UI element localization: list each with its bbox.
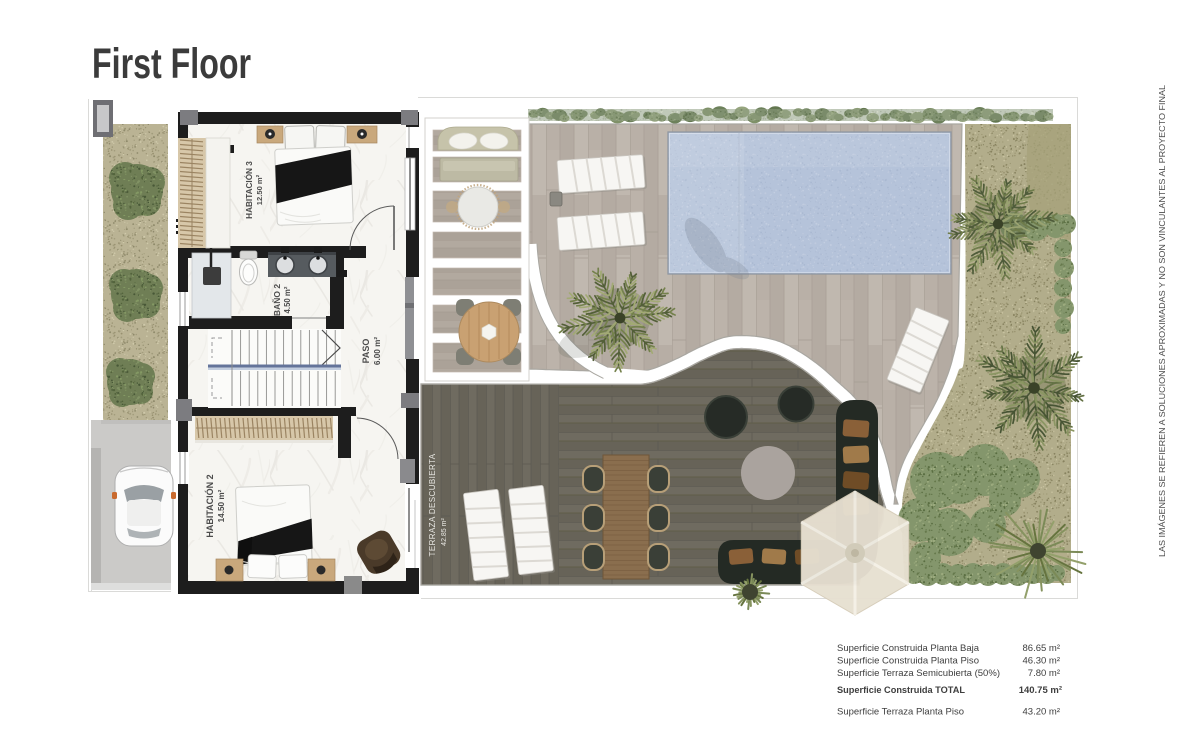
svg-text:42.85 m²: 42.85 m² bbox=[441, 518, 448, 546]
svg-text:12.50 m²: 12.50 m² bbox=[255, 174, 264, 205]
svg-text:HABITACIÓN 2: HABITACIÓN 2 bbox=[204, 474, 215, 537]
svg-text:6.00 m²: 6.00 m² bbox=[373, 337, 382, 365]
svg-text:4.50 m²: 4.50 m² bbox=[283, 286, 292, 313]
svg-text:BAÑO 2: BAÑO 2 bbox=[272, 284, 282, 316]
svg-text:140.75 m²: 140.75 m² bbox=[1019, 685, 1062, 696]
svg-text:Superficie Terraza Planta Piso: Superficie Terraza Planta Piso bbox=[837, 707, 964, 718]
svg-text:43.20 m²: 43.20 m² bbox=[1023, 707, 1061, 718]
svg-text:Superficie Construida Planta P: Superficie Construida Planta Piso bbox=[837, 656, 979, 667]
svg-text:86.65 m²: 86.65 m² bbox=[1023, 643, 1061, 654]
svg-text:First Floor: First Floor bbox=[92, 40, 251, 88]
svg-text:Superficie Terraza Semicubiert: Superficie Terraza Semicubierta (50%) bbox=[837, 668, 1000, 679]
svg-text:PASO: PASO bbox=[361, 339, 371, 364]
svg-text:LAS IMÁGENES SE REFIEREN A SOL: LAS IMÁGENES SE REFIEREN A SOLUCIONES AP… bbox=[1157, 85, 1167, 557]
svg-text:TERRAZA DESCUBIERTA: TERRAZA DESCUBIERTA bbox=[428, 453, 437, 556]
svg-text:Superficie Construida Planta B: Superficie Construida Planta Baja bbox=[837, 643, 980, 654]
svg-text:46.30 m²: 46.30 m² bbox=[1023, 656, 1061, 667]
svg-text:Superficie Construida TOTAL: Superficie Construida TOTAL bbox=[837, 685, 965, 696]
svg-text:HABITACIÓN 3: HABITACIÓN 3 bbox=[243, 161, 254, 219]
svg-text:14.50 m²: 14.50 m² bbox=[217, 489, 226, 522]
svg-text:7.80 m²: 7.80 m² bbox=[1028, 668, 1060, 679]
